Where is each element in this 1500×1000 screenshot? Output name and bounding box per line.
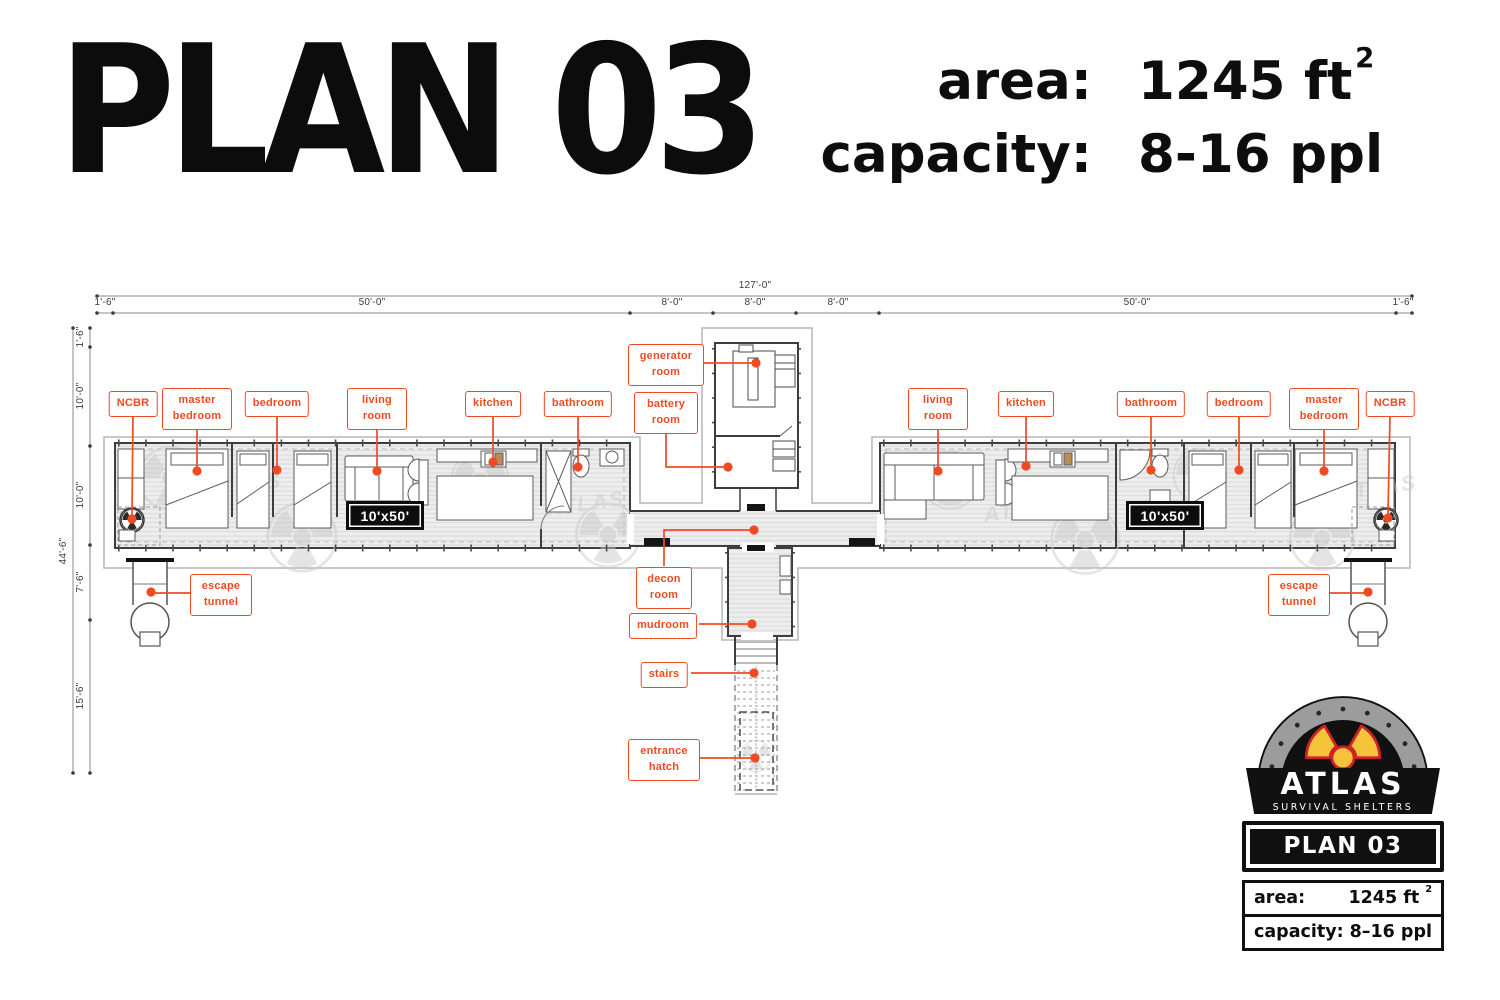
- label-decon-room: decon room: [636, 567, 692, 609]
- logo-area-row: area: 1245 ft 2: [1245, 883, 1441, 914]
- area-label: area:: [937, 52, 1092, 113]
- dim-total-width: 127'-0": [739, 281, 771, 291]
- area-value: 1245 ft2: [1138, 52, 1374, 113]
- dim-left-seg-1: 10'-0": [76, 383, 86, 410]
- label-stairs: stairs: [641, 662, 688, 688]
- brand-tagline: SURVIVAL SHELTERS: [1273, 803, 1414, 813]
- label-living-room-left: living room: [347, 388, 407, 430]
- logo-capacity-value: 8–16 ppl: [1350, 922, 1432, 943]
- dim-left-seg-3: 7'-6": [76, 572, 86, 593]
- plan-03-sheet: ATLAS ATLAS ATLAS ATLAS ATLAS ATLAS: [0, 0, 1500, 1000]
- dim-top-seg-2: 8'-0": [662, 298, 683, 308]
- unit-size-badge-right: 10'x50': [1126, 501, 1204, 530]
- stairs-drawing: [735, 636, 777, 794]
- label-kitchen-left: kitchen: [465, 391, 521, 417]
- dim-top-seg-1: 50'-0": [359, 298, 386, 308]
- label-escape-tunnel-left: escape tunnel: [190, 574, 252, 616]
- dim-top-seg-4: 8'-0": [828, 298, 849, 308]
- dim-left-total: 44'-6": [59, 538, 69, 565]
- dim-left-seg-4: 15'-6": [76, 683, 86, 710]
- battery-equipment: [773, 441, 795, 471]
- page-title: PLAN 03: [58, 22, 758, 200]
- logo-area-label: area:: [1254, 888, 1305, 909]
- label-generator-room: generator room: [628, 344, 704, 386]
- label-bathroom-left: bathroom: [544, 391, 612, 417]
- logo-banner: ATLAS SURVIVAL SHELTERS: [1242, 768, 1444, 814]
- plan-number-badge: PLAN 03: [1242, 821, 1444, 872]
- label-bathroom-right: bathroom: [1117, 391, 1185, 417]
- capacity-value: 8-16 ppl: [1138, 125, 1383, 186]
- dim-left-seg-2: 10'-0": [76, 482, 86, 509]
- capacity-label: capacity:: [820, 125, 1092, 186]
- header-stats: area: 1245 ft2 capacity: 8-16 ppl: [820, 52, 1438, 186]
- mudroom-drawing: [728, 543, 792, 640]
- dim-left-seg-0: 1'-6": [76, 327, 86, 348]
- label-kitchen-right: kitchen: [998, 391, 1054, 417]
- label-escape-tunnel-right: escape tunnel: [1268, 574, 1330, 616]
- dim-top-seg-3: 8'-0": [745, 298, 766, 308]
- label-ncbr-left: NCBR: [109, 391, 158, 417]
- label-master-bedroom-left: master bedroom: [162, 388, 232, 430]
- logo-area-value: 1245 ft 2: [1348, 888, 1432, 909]
- logo-capacity-label: capacity:: [1254, 922, 1344, 943]
- tower-rooms: [715, 343, 798, 511]
- atlas-logo-block: ATLAS SURVIVAL SHELTERS PLAN 03 area: 12…: [1242, 676, 1444, 951]
- brand-name: ATLAS: [1280, 770, 1405, 800]
- label-ncbr-right: NCBR: [1366, 391, 1415, 417]
- label-master-bedroom-right: master bedroom: [1289, 388, 1359, 430]
- label-bedroom-right: bedroom: [1207, 391, 1271, 417]
- label-entrance-hatch: entrance hatch: [628, 739, 700, 781]
- logo-stats-table: area: 1245 ft 2 capacity: 8–16 ppl: [1242, 880, 1444, 951]
- unit-size-badge-left: 10'x50': [346, 501, 424, 530]
- dim-top-seg-5: 50'-0": [1124, 298, 1151, 308]
- label-battery-room: battery room: [634, 392, 698, 434]
- escape-tunnel-right-drawing: [1344, 560, 1392, 646]
- label-bedroom-left: bedroom: [245, 391, 309, 417]
- escape-tunnel-left-drawing: [126, 560, 174, 646]
- label-living-room-right: living room: [908, 388, 968, 430]
- dim-top-seg-6: 1'-6": [1393, 298, 1414, 308]
- dim-top-seg-0: 1'-6": [95, 298, 116, 308]
- label-mudroom: mudroom: [629, 613, 697, 639]
- logo-capacity-row: capacity: 8–16 ppl: [1245, 914, 1441, 948]
